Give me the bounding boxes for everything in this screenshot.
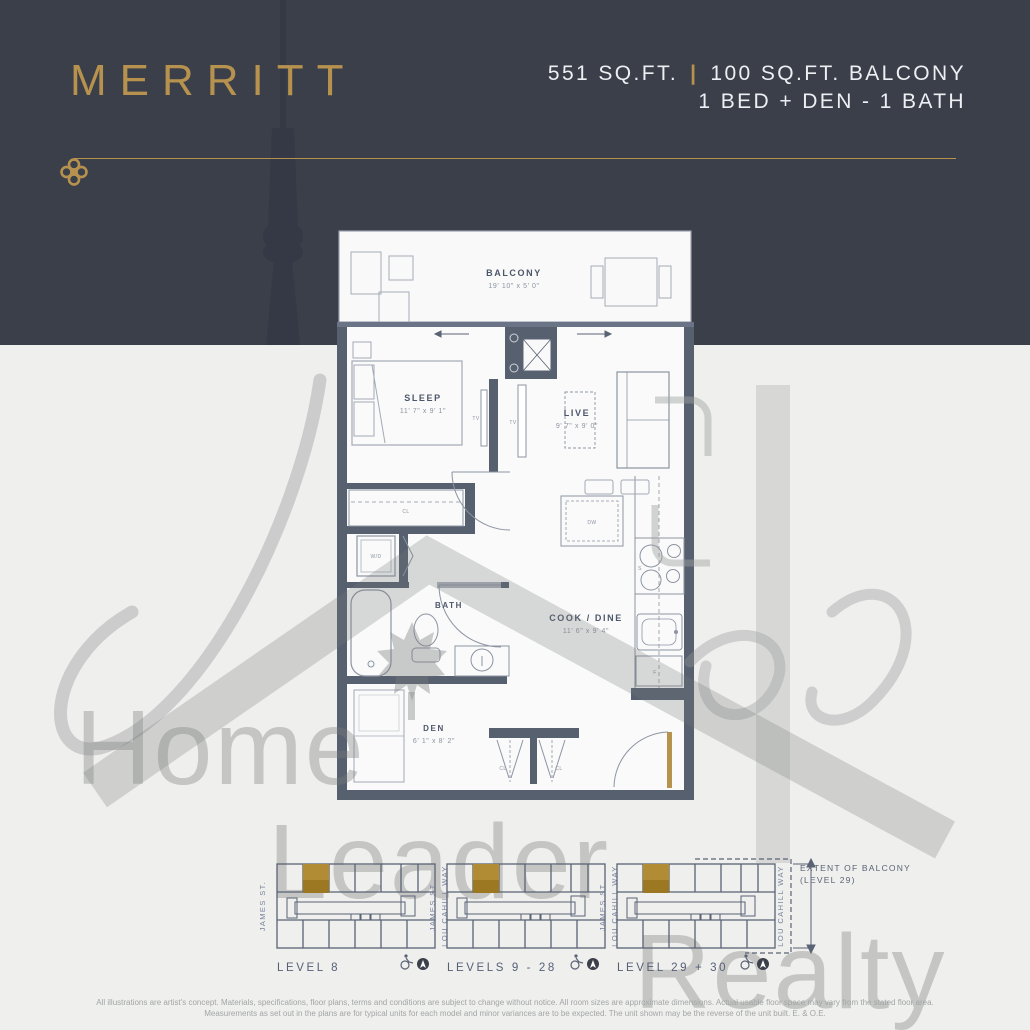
disclaimer-line2: Measurements as set out in the plans are…	[0, 1008, 1030, 1019]
balcony-area: 100 SQ.FT. BALCONY	[710, 62, 966, 85]
closet-label: CL	[499, 766, 506, 772]
closet-label: CL	[402, 509, 409, 515]
script-stroke	[811, 594, 906, 720]
tv-label-sleep: TV	[472, 416, 479, 422]
balcony-note-line1: EXTENT OF BALCONY	[800, 862, 911, 874]
street-label-right: LOU CAHILL WAY	[776, 865, 785, 946]
tv-panel-live	[518, 385, 526, 457]
tv-label-live: TV	[509, 420, 516, 426]
cook-dims: 11' 6" x 9' 4"	[563, 628, 609, 635]
flyer-page: MERRITT 551 SQ.FT.|100 SQ.FT. BALCONY 1 …	[0, 0, 1030, 1030]
balcony-note-line2: (LEVEL 29)	[800, 874, 911, 886]
stove-label: S	[638, 566, 642, 572]
highlighted-unit	[473, 864, 499, 880]
watermark-word: Home	[75, 688, 366, 809]
keyplans-row: JAMES ST. LOU CAHILL WAY LEVEL 8	[0, 856, 1030, 986]
cook-label: COOK / DINE	[549, 613, 623, 623]
live-label: LIVE	[564, 408, 590, 418]
bath-label: BATH	[435, 601, 463, 610]
spec-line-areas: 551 SQ.FT.|100 SQ.FT. BALCONY	[548, 60, 966, 88]
unit-floor	[347, 327, 684, 790]
street-label-left: JAMES ST.	[258, 881, 267, 932]
disclaimer-line1: All illustrations are artist's concept. …	[0, 997, 1030, 1008]
highlighted-unit	[303, 880, 329, 893]
street-label-left: JAMES ST.	[598, 881, 607, 932]
script-stroke	[690, 635, 780, 714]
accessible-icon	[401, 954, 413, 969]
highlighted-unit	[303, 864, 329, 880]
watermark-band	[756, 385, 790, 863]
unit-specs: 551 SQ.FT.|100 SQ.FT. BALCONY 1 BED + DE…	[548, 60, 966, 116]
den-label: DEN	[423, 724, 445, 733]
keyplan-label: LEVEL 8	[277, 962, 340, 974]
accessible-icon	[741, 954, 753, 969]
accessible-icon	[571, 954, 583, 969]
balcony-extent-note: EXTENT OF BALCONY (LEVEL 29)	[800, 862, 911, 886]
closet-label: CL	[555, 766, 562, 772]
fridge-label: F	[653, 670, 656, 676]
street-label-left: JAMES ST.	[428, 881, 437, 932]
highlighted-unit	[643, 880, 669, 893]
keyplan-label: LEVELS 9 - 28	[447, 962, 557, 974]
quatrefoil-icon	[60, 158, 88, 186]
sleep-dims: 11' 7" x 9' 1"	[400, 408, 446, 415]
floorplan: BALCONY 19' 10" x 5' 0"	[337, 230, 694, 805]
script-stroke	[61, 380, 320, 749]
spec-separator: |	[678, 62, 710, 85]
north-indicator-icon	[757, 958, 769, 970]
disclaimer: All illustrations are artist's concept. …	[0, 997, 1030, 1019]
unit-area: 551 SQ.FT.	[548, 62, 678, 85]
keyplan-label: LEVEL 29 + 30	[617, 962, 728, 974]
dishwasher-label: DW	[587, 520, 596, 526]
spec-line-layout: 1 BED + DEN - 1 BATH	[548, 88, 966, 116]
balcony-label: BALCONY	[486, 268, 542, 278]
highlighted-unit	[643, 864, 669, 880]
divider-rule	[74, 158, 956, 159]
live-dims: 9' 7" x 9' 0"	[556, 423, 598, 430]
sleep-label: SLEEP	[404, 393, 442, 403]
highlighted-unit	[473, 880, 499, 893]
plan-title: MERRITT	[70, 56, 357, 106]
gold-divider	[60, 158, 970, 159]
washer-dryer-label: W/D	[371, 554, 382, 560]
balcony-dims: 19' 10" x 5' 0"	[488, 283, 539, 290]
tv-panel-sleep	[481, 390, 487, 446]
den-dims: 6' 1" x 8' 2"	[413, 738, 455, 745]
